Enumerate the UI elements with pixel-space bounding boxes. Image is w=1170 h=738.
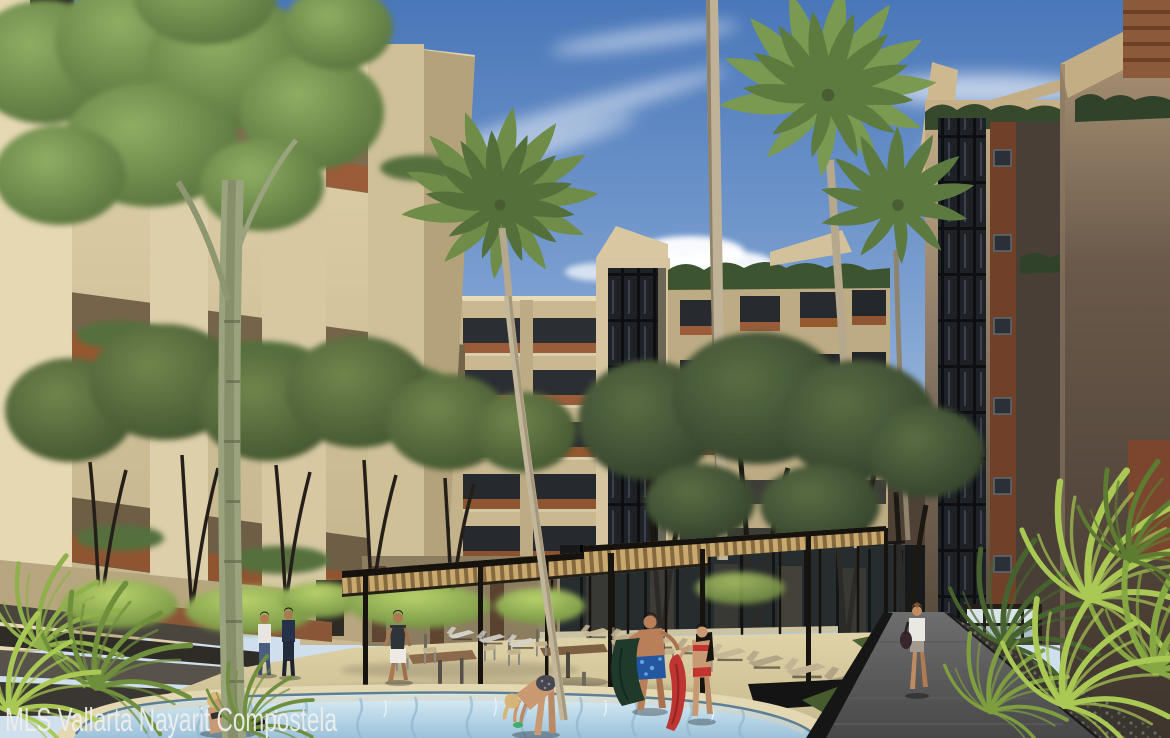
watermark-text: MLS Vallarta Nayarit Compostela [5,701,337,738]
architectural-rendering-image: MLS Vallarta Nayarit Compostela [0,0,1170,738]
